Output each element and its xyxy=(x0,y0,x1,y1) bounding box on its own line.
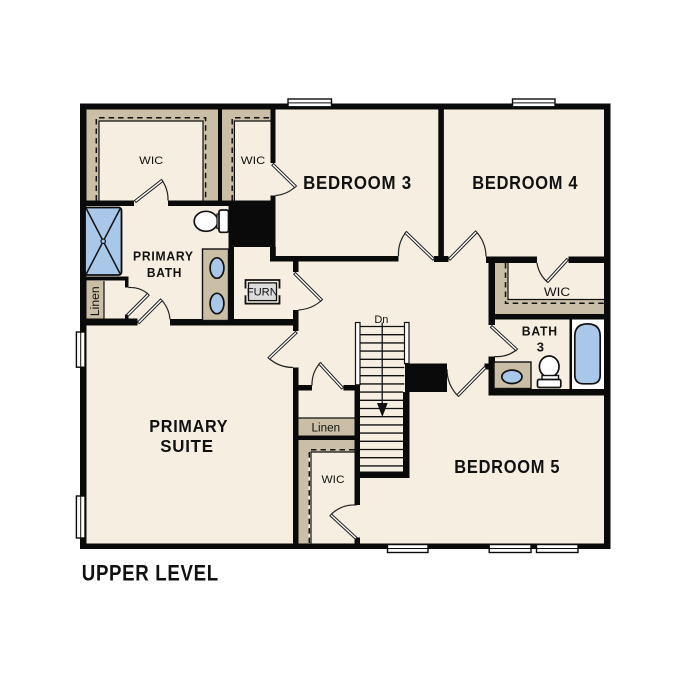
svg-text:Linen: Linen xyxy=(90,286,102,316)
svg-text:WIC: WIC xyxy=(241,155,266,167)
svg-text:BEDROOM 5: BEDROOM 5 xyxy=(454,457,560,477)
svg-text:UPPER LEVEL: UPPER LEVEL xyxy=(82,561,219,586)
svg-text:BATH: BATH xyxy=(522,323,558,338)
svg-text:BEDROOM 4: BEDROOM 4 xyxy=(472,173,578,193)
svg-text:FURN: FURN xyxy=(247,286,278,298)
svg-text:WIC: WIC xyxy=(322,474,345,486)
svg-text:3: 3 xyxy=(537,340,545,355)
svg-text:PRIMARY: PRIMARY xyxy=(133,248,194,263)
svg-text:PRIMARY: PRIMARY xyxy=(149,416,228,436)
svg-text:WIC: WIC xyxy=(544,287,570,299)
svg-text:Dn: Dn xyxy=(374,314,388,326)
svg-text:SUITE: SUITE xyxy=(160,436,214,456)
svg-text:Linen: Linen xyxy=(312,423,341,435)
svg-text:BATH: BATH xyxy=(147,265,182,280)
svg-text:BEDROOM 3: BEDROOM 3 xyxy=(303,173,412,193)
svg-text:WIC: WIC xyxy=(139,155,163,167)
